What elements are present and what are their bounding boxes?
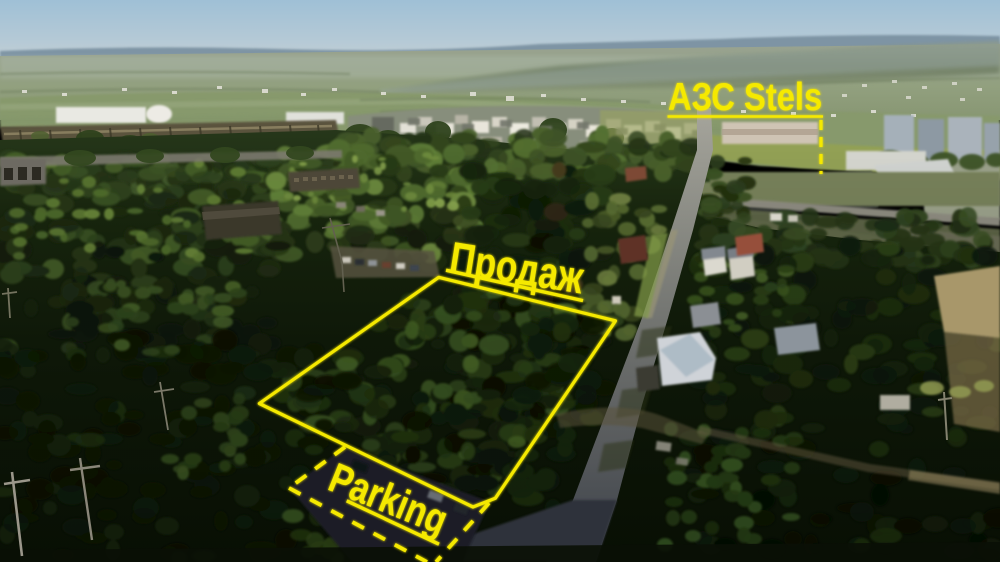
svg-text:АЗС Stels: АЗС Stels <box>668 76 822 119</box>
